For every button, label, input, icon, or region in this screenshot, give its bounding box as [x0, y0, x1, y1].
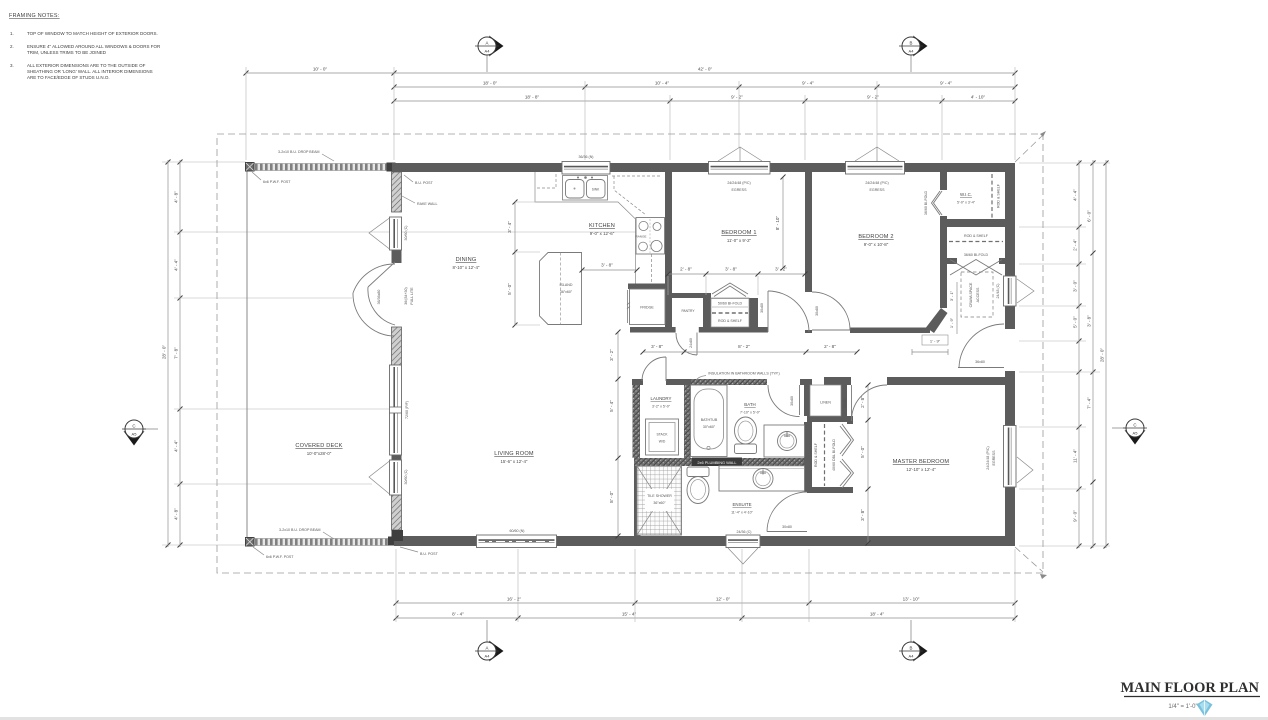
svg-text:5' - 0": 5' - 0" [1073, 316, 1078, 328]
svg-text:5' - 0": 5' - 0" [507, 283, 512, 295]
svg-text:4' - 10": 4' - 10" [971, 95, 986, 100]
svg-text:15'-6" x 12'-4": 15'-6" x 12'-4" [500, 459, 527, 464]
svg-text:ROD & SHELF: ROD & SHELF [814, 442, 818, 467]
svg-text:15' - 4": 15' - 4" [622, 612, 637, 617]
svg-text:C: C [132, 424, 135, 429]
svg-text:24/24/48 (P/C): 24/24/48 (P/C) [727, 181, 750, 185]
svg-text:36/(84+30): 36/(84+30) [404, 287, 408, 304]
svg-text:3' - 2": 3' - 2" [775, 267, 787, 272]
svg-text:9' - 4": 9' - 4" [940, 81, 952, 86]
svg-text:PANTRY: PANTRY [681, 309, 695, 313]
svg-text:A: A [486, 646, 489, 651]
svg-text:30x80: 30x80 [760, 303, 764, 313]
svg-text:9'-0" x 10'-8": 9'-0" x 10'-8" [864, 242, 889, 247]
svg-text:2' - 8": 2' - 8" [824, 344, 836, 349]
svg-text:W.I.C.: W.I.C. [960, 192, 972, 197]
svg-text:ARE TO FACE/EDGE OF STUDS U.N.: ARE TO FACE/EDGE OF STUDS U.N.O. [27, 75, 110, 80]
svg-text:12' - 0": 12' - 0" [716, 597, 731, 602]
svg-text:3' - 8": 3' - 8" [725, 267, 737, 272]
svg-text:4' - 4": 4' - 4" [174, 440, 179, 452]
svg-text:30/60 (C): 30/60 (C) [404, 226, 408, 241]
svg-text:CRAWLSPACE: CRAWLSPACE [969, 282, 973, 307]
svg-text:COVERED DECK: COVERED DECK [295, 443, 342, 449]
svg-text:STACK: STACK [656, 433, 668, 437]
svg-text:TRIM, UNLESS TRIMS TO BE JOINE: TRIM, UNLESS TRIMS TO BE JOINED [27, 50, 107, 55]
svg-text:10' - 0": 10' - 0" [313, 67, 328, 72]
svg-text:ALL EXTERIOR DIMENSIONS ARE TO: ALL EXTERIOR DIMENSIONS ARE TO THE OUTSI… [27, 63, 146, 68]
svg-text:FRIDGE: FRIDGE [640, 306, 654, 310]
svg-text:4' - 8": 4' - 8" [174, 508, 179, 520]
svg-text:A4: A4 [909, 654, 915, 659]
svg-text:SHEATHING OR 'LONG' WALL. ALL: SHEATHING OR 'LONG' WALL. ALL INTERIOR D… [27, 69, 153, 74]
svg-text:36"x60": 36"x60" [560, 290, 573, 294]
svg-text:11' - 4": 11' - 4" [1073, 449, 1078, 463]
svg-text:3-2x10 B.U. DROP BEAM: 3-2x10 B.U. DROP BEAM [279, 528, 320, 532]
svg-text:24/24/48 (P/C): 24/24/48 (P/C) [865, 181, 888, 185]
svg-text:9' - 2": 9' - 2" [867, 95, 879, 100]
svg-text:RANGE: RANGE [635, 235, 646, 239]
svg-text:4' - 4": 4' - 4" [1073, 189, 1078, 201]
svg-text:10'-0"x28'-0": 10'-0"x28'-0" [307, 451, 332, 456]
svg-text:24x80: 24x80 [689, 338, 693, 348]
svg-text:2x6 PLUMBING WALL: 2x6 PLUMBING WALL [697, 460, 737, 465]
svg-text:24/48 (C): 24/48 (C) [996, 284, 1000, 299]
svg-text:8' - 4": 8' - 4" [452, 612, 464, 617]
svg-text:7' - 4": 7' - 4" [1087, 397, 1092, 409]
svg-text:18' - 4": 18' - 4" [870, 612, 885, 617]
svg-text:2' - 4": 2' - 4" [1073, 239, 1078, 251]
svg-text:3' - 8": 3' - 8" [1087, 315, 1092, 327]
svg-text:11'-4" x 4'-10": 11'-4" x 4'-10" [731, 511, 754, 515]
svg-text:5' - 0": 5' - 0" [860, 446, 865, 458]
svg-text:18' - 8": 18' - 8" [525, 95, 540, 100]
svg-text:A4: A4 [485, 49, 491, 54]
svg-text:4' - 4": 4' - 4" [174, 259, 179, 271]
svg-text:3' - 2": 3' - 2" [609, 349, 614, 361]
svg-text:MAIN FLOOR PLAN: MAIN FLOOR PLAN [1120, 680, 1259, 696]
svg-text:9' - 2": 9' - 2" [731, 95, 743, 100]
svg-text:5'-0" x 3'-4": 5'-0" x 3'-4" [957, 201, 976, 205]
svg-text:C: C [1133, 423, 1136, 428]
svg-text:TILE SHOWER: TILE SHOWER [647, 494, 672, 498]
svg-text:6' - 0": 6' - 0" [1087, 210, 1092, 222]
svg-text:BATH: BATH [744, 402, 755, 407]
svg-text:BEDROOM 2: BEDROOM 2 [858, 234, 893, 240]
svg-text:BEDROOM 1: BEDROOM 1 [721, 230, 756, 236]
svg-text:2.: 2. [10, 44, 14, 49]
svg-text:16' - 2": 16' - 2" [507, 597, 522, 602]
svg-text:12'-10" x 12'-4": 12'-10" x 12'-4" [906, 467, 936, 472]
svg-text:ROD & SHELF: ROD & SHELF [997, 183, 1001, 208]
svg-text:3' - 8": 3' - 8" [651, 344, 663, 349]
svg-text:1' - 9": 1' - 9" [930, 339, 941, 344]
svg-text:9' - 0": 9' - 0" [1073, 510, 1078, 522]
svg-text:FULL LITE: FULL LITE [410, 287, 414, 305]
svg-text:ROD & SHELF: ROD & SHELF [964, 234, 989, 238]
svg-text:3' - 4": 3' - 4" [507, 221, 512, 233]
svg-text:36"x60": 36"x60" [653, 501, 666, 505]
svg-text:1/4" = 1'-0": 1/4" = 1'-0" [1168, 704, 1197, 710]
svg-text:A5: A5 [1133, 431, 1139, 436]
svg-text:3' - 1": 3' - 1" [949, 290, 954, 301]
svg-text:30/60 (C): 30/60 (C) [404, 470, 408, 485]
svg-text:B.U. POST: B.U. POST [420, 552, 439, 556]
svg-text:30"x60": 30"x60" [703, 425, 716, 429]
svg-text:40/60 DBL BI-FOLD: 40/60 DBL BI-FOLD [832, 439, 836, 471]
svg-text:A5: A5 [132, 432, 138, 437]
svg-text:RAKE WALL: RAKE WALL [417, 202, 437, 206]
svg-text:KITCHEN: KITCHEN [589, 223, 615, 229]
svg-text:ROD & SHELF: ROD & SHELF [718, 319, 743, 323]
svg-text:A: A [486, 41, 489, 46]
svg-text:8' - 0": 8' - 0" [609, 491, 614, 503]
svg-text:A4: A4 [485, 654, 491, 659]
svg-text:B.U. POST: B.U. POST [415, 181, 434, 185]
svg-text:5' - 4": 5' - 4" [609, 400, 614, 412]
svg-text:ACCESS: ACCESS [976, 287, 980, 302]
svg-text:60/60 (N): 60/60 (N) [510, 529, 525, 533]
svg-text:4' - 8": 4' - 8" [174, 191, 179, 203]
svg-text:36/36 (N): 36/36 (N) [579, 155, 594, 159]
svg-text:MASTER BEDROOM: MASTER BEDROOM [893, 459, 950, 465]
svg-text:30x80: 30x80 [843, 398, 847, 408]
svg-text:EGRESS: EGRESS [992, 450, 996, 466]
svg-text:FRAMING NOTES:: FRAMING NOTES: [9, 13, 60, 19]
svg-text:8' - 2": 8' - 2" [738, 344, 750, 349]
svg-text:3' - 8": 3' - 8" [860, 509, 865, 521]
svg-text:W/D: W/D [659, 440, 666, 444]
svg-text:LINEN: LINEN [820, 401, 831, 405]
svg-text:11'-0" x 9'-2": 11'-0" x 9'-2" [727, 238, 752, 243]
svg-text:DINING: DINING [456, 257, 477, 263]
svg-text:3' - 0": 3' - 0" [1073, 280, 1078, 292]
svg-text:3' - 8": 3' - 8" [601, 263, 613, 268]
svg-text:30x80: 30x80 [782, 525, 792, 529]
svg-text:42' - 0": 42' - 0" [698, 67, 713, 72]
svg-text:TOP OF WINDOW TO MATCH HEIGHT: TOP OF WINDOW TO MATCH HEIGHT OF EXTERIO… [27, 31, 158, 36]
svg-text:8'-10" x 12'-4": 8'-10" x 12'-4" [452, 265, 479, 270]
svg-text:10' - 4": 10' - 4" [655, 81, 670, 86]
svg-text:2' - 8": 2' - 8" [860, 396, 865, 408]
svg-text:LIVING ROOM: LIVING ROOM [494, 451, 534, 457]
svg-text:24/24/48 (P/C): 24/24/48 (P/C) [986, 446, 990, 469]
svg-text:ISLAND: ISLAND [560, 283, 573, 287]
svg-text:8' - 10": 8' - 10" [775, 216, 780, 231]
svg-text:24/36 (C): 24/36 (C) [737, 530, 752, 534]
svg-text:SINK: SINK [592, 188, 600, 192]
svg-text:3'-2" x 5'-0": 3'-2" x 5'-0" [652, 405, 671, 409]
svg-text:13' - 10": 13' - 10" [903, 597, 920, 602]
svg-text:9'-0" x 12'-6": 9'-0" x 12'-6" [590, 231, 615, 236]
svg-text:6x6 P.W.F. POST: 6x6 P.W.F. POST [266, 555, 294, 559]
svg-text:72/60 (P/F): 72/60 (P/F) [405, 401, 409, 419]
svg-text:28' - 0": 28' - 0" [162, 345, 167, 360]
svg-text:18' - 0": 18' - 0" [483, 81, 498, 86]
svg-text:30x80: 30x80 [815, 306, 819, 316]
svg-text:28' - 0": 28' - 0" [1100, 348, 1105, 363]
svg-text:ENSURE 4" ALLOWED AROUND ALL W: ENSURE 4" ALLOWED AROUND ALL WINDOWS & D… [27, 44, 161, 49]
svg-text:36/60 BI-FOLD: 36/60 BI-FOLD [964, 253, 989, 257]
svg-text:EGRESS: EGRESS [732, 188, 748, 192]
svg-text:50/60 BI-FOLD: 50/60 BI-FOLD [718, 302, 743, 306]
svg-text:A4: A4 [909, 49, 915, 54]
svg-text:30x80: 30x80 [790, 396, 794, 406]
svg-text:2' - 8": 2' - 8" [680, 267, 692, 272]
svg-text:B: B [910, 41, 913, 46]
svg-text:3-2x10 B.U. DROP BEAM: 3-2x10 B.U. DROP BEAM [278, 150, 319, 154]
svg-text:7' - 8": 7' - 8" [174, 347, 179, 359]
svg-text:EGRESS: EGRESS [870, 188, 886, 192]
svg-text:LAUNDRY: LAUNDRY [651, 396, 672, 401]
svg-text:6x6 P.W.F. POST: 6x6 P.W.F. POST [263, 180, 291, 184]
svg-text:1.: 1. [10, 31, 14, 36]
svg-text:B: B [910, 646, 913, 651]
svg-text:BATHTUB: BATHTUB [701, 418, 718, 422]
svg-text:ENSUITE: ENSUITE [732, 502, 751, 507]
svg-text:9' - 4": 9' - 4" [802, 81, 814, 86]
svg-text:36/60 BI-FOLD: 36/60 BI-FOLD [924, 191, 928, 216]
svg-text:3.: 3. [10, 63, 14, 68]
svg-text:1' - 9": 1' - 9" [949, 317, 954, 328]
svg-text:7'-10" x 5'-0": 7'-10" x 5'-0" [740, 411, 761, 415]
svg-text:36x80: 36x80 [975, 360, 985, 364]
svg-text:INSULATION IN BATHROOM WALLS (: INSULATION IN BATHROOM WALLS (TYP.) [708, 372, 779, 376]
svg-text:36/36x80: 36/36x80 [377, 290, 381, 305]
